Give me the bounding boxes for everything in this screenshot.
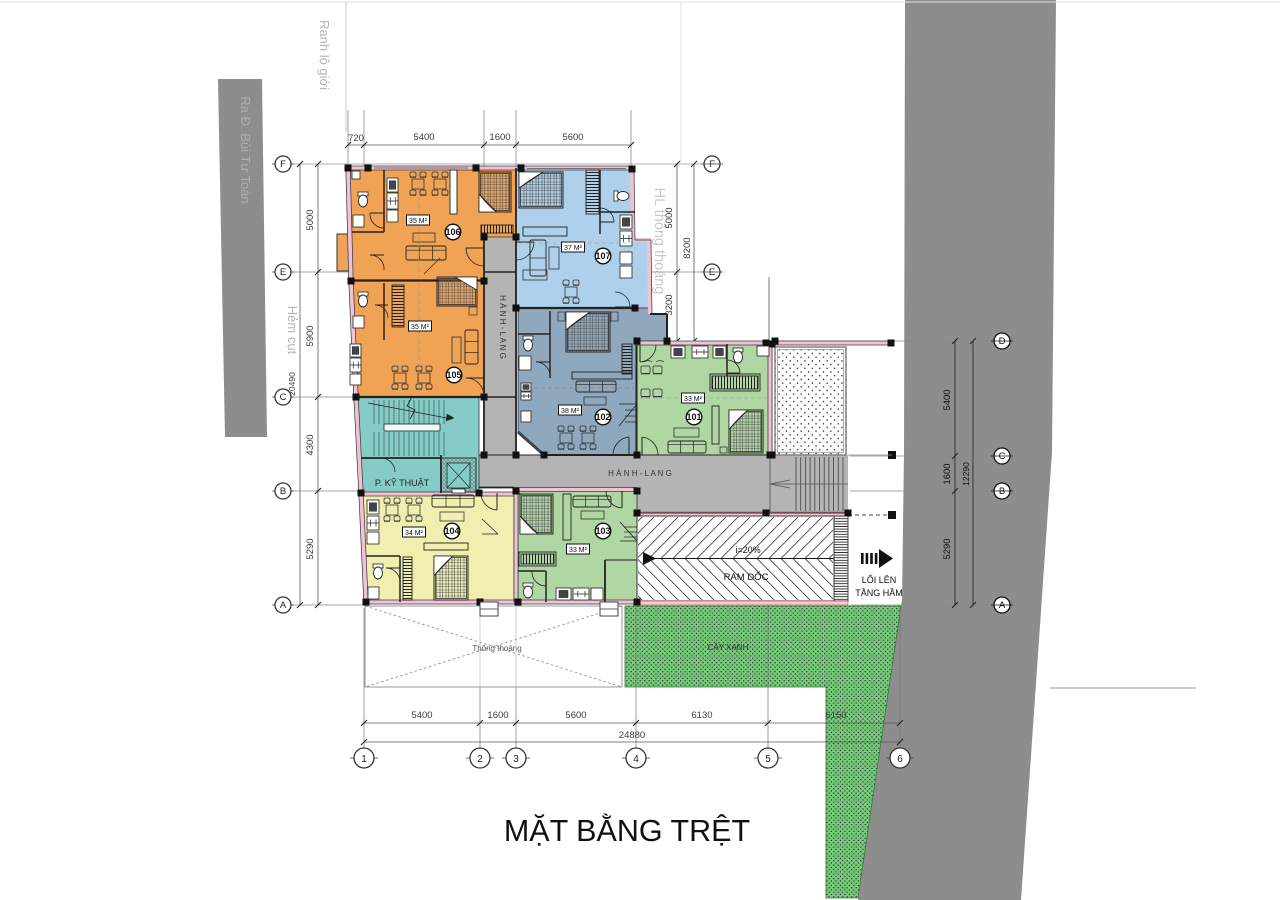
svg-text:E: E [709,267,715,278]
svg-text:8200: 8200 [682,237,693,258]
svg-text:LỐI LÊN: LỐI LÊN [862,574,897,585]
svg-text:1600: 1600 [489,132,510,143]
svg-text:5: 5 [765,754,771,765]
svg-text:5400: 5400 [413,132,434,143]
svg-text:Hẻm cụt: Hẻm cụt [285,306,300,355]
svg-text:24880: 24880 [619,730,645,741]
svg-text:33 M²: 33 M² [569,547,588,554]
svg-text:H À N H - L A N G: H À N H - L A N G [608,469,672,478]
svg-text:3: 3 [513,754,519,765]
svg-text:A: A [999,600,1006,611]
svg-text:5600: 5600 [562,132,583,143]
svg-text:H À N H - L A N G: H À N H - L A N G [498,295,507,359]
svg-text:B: B [280,486,286,497]
svg-text:6: 6 [897,754,903,765]
svg-text:102: 102 [595,412,610,422]
svg-text:RAM DỐC: RAM DỐC [724,571,769,583]
svg-text:5000: 5000 [305,209,316,230]
svg-text:103: 103 [595,526,610,536]
svg-text:35 M²: 35 M² [409,218,428,225]
svg-text:i=20%: i=20% [735,545,760,555]
svg-text:E: E [280,267,286,278]
svg-text:Ra Đ. Bùi Tư Toàn: Ra Đ. Bùi Tư Toàn [238,96,253,203]
svg-text:101: 101 [686,412,701,422]
svg-text:4300: 4300 [305,434,316,455]
svg-text:37 M²: 37 M² [564,245,583,252]
svg-text:2: 2 [477,754,483,765]
svg-text:720: 720 [348,133,364,144]
svg-text:106: 106 [445,227,460,237]
svg-text:4: 4 [633,754,639,765]
svg-text:5900: 5900 [305,325,316,346]
svg-text:5290: 5290 [942,538,953,559]
svg-text:C: C [280,392,287,403]
svg-text:5600: 5600 [565,710,586,721]
svg-text:C: C [999,451,1006,462]
svg-text:Ranh lộ giới: Ranh lộ giới [317,20,332,90]
svg-text:1600: 1600 [942,463,953,484]
svg-text:5290: 5290 [305,538,316,559]
svg-text:1600: 1600 [487,710,508,721]
svg-text:5400: 5400 [942,389,953,410]
svg-text:107: 107 [595,251,610,261]
svg-text:HL thông thoáng: HL thông thoáng [651,188,667,295]
svg-text:6130: 6130 [691,710,712,721]
svg-text:105: 105 [446,370,461,380]
svg-text:38 M²: 38 M² [561,408,580,415]
svg-text:F: F [709,159,715,170]
svg-text:6150: 6150 [825,710,846,721]
svg-text:1: 1 [361,754,367,765]
svg-text:33 M²: 33 M² [684,396,703,403]
svg-text:CÂY XANH: CÂY XANH [708,643,749,652]
svg-text:34 M²: 34 M² [405,530,424,537]
svg-text:MẶT BẰNG TRỆT: MẶT BẰNG TRỆT [504,813,750,848]
svg-text:104: 104 [444,526,459,536]
svg-text:12290: 12290 [961,462,971,486]
svg-text:D: D [999,336,1006,347]
svg-text:5000: 5000 [664,207,675,228]
svg-text:3200: 3200 [664,294,675,315]
svg-text:P. KỸ THUẬT: P. KỸ THUẬT [375,478,430,488]
svg-text:TẦNG HẦM: TẦNG HẦM [855,588,903,598]
svg-text:35 M²: 35 M² [411,324,430,331]
svg-text:A: A [280,600,287,611]
svg-text:B: B [999,486,1005,497]
svg-text:5400: 5400 [411,710,432,721]
svg-text:F: F [280,159,286,170]
